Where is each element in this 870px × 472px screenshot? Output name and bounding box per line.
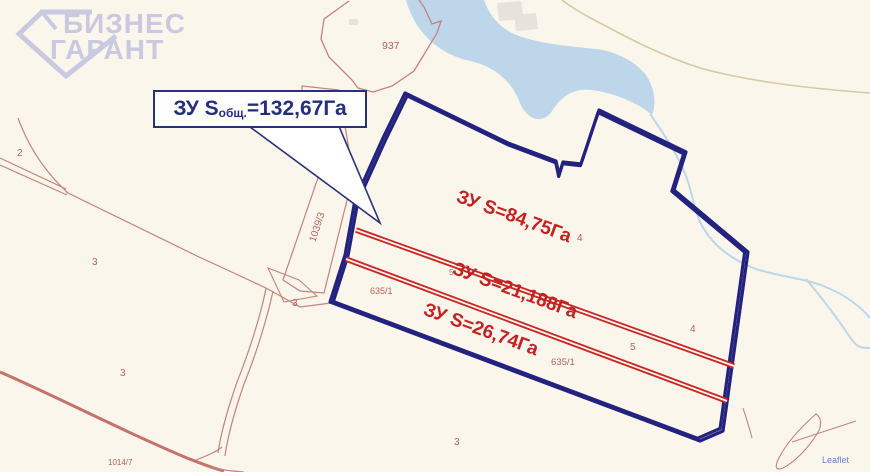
road-junction-curve-b xyxy=(205,466,244,472)
callout-value: =132,67Га xyxy=(247,97,347,121)
parcel-number: 3 xyxy=(454,437,460,448)
callout-subscript: общ. xyxy=(219,106,247,120)
road-double-line-a xyxy=(0,158,66,189)
terrain-squiggle-2 xyxy=(776,414,820,469)
parcel-outline-small xyxy=(268,268,317,302)
total-area-callout: ЗУ Sобщ.=132,67Га xyxy=(153,90,367,128)
stream-fork-line xyxy=(806,279,870,348)
road-south-double-a xyxy=(218,288,266,453)
parcel-number: 1039/3 xyxy=(308,211,328,244)
building-footprint xyxy=(497,1,538,31)
parcel-number: 4 xyxy=(690,324,696,335)
building-footprint-small xyxy=(349,19,358,25)
map-canvas: 937 2 3 3 3 3 4 4 5 5 635/1 635/1 1039/3… xyxy=(0,0,870,472)
parcel-number: 3 xyxy=(92,257,98,268)
parcel-boundary-outer xyxy=(330,93,748,441)
road-double-line-b xyxy=(0,165,67,195)
parcel-number: 635/1 xyxy=(370,286,393,296)
road-south-double-b xyxy=(225,291,273,456)
parcel-number: 3 xyxy=(292,298,298,309)
map-viewport[interactable]: 937 2 3 3 3 3 4 4 5 5 635/1 635/1 1039/3… xyxy=(0,0,870,472)
parcel-number: 5 xyxy=(630,342,636,353)
strip-area-label-1: ЗУ S=84,75Га xyxy=(454,186,575,247)
parcel-number: 1014/7 xyxy=(108,458,133,467)
parcel-number: 937 xyxy=(382,40,400,52)
parcel-2-curve xyxy=(18,118,68,193)
parcel-number: 2 xyxy=(17,148,23,159)
road-line-continuation xyxy=(66,192,331,307)
parcel-number: 4 xyxy=(577,233,583,244)
callout-pointer xyxy=(246,124,380,223)
stream-line xyxy=(650,114,870,318)
callout-prefix: ЗУ S xyxy=(173,97,218,121)
terrain-squiggle-3 xyxy=(792,421,856,442)
road-thick-bottom xyxy=(0,372,224,471)
parcel-number: 3 xyxy=(120,368,126,379)
parcel-number: 635/1 xyxy=(551,357,575,368)
leaflet-attribution[interactable]: Leaflet xyxy=(822,455,849,465)
terrain-squiggle-1 xyxy=(743,408,752,438)
